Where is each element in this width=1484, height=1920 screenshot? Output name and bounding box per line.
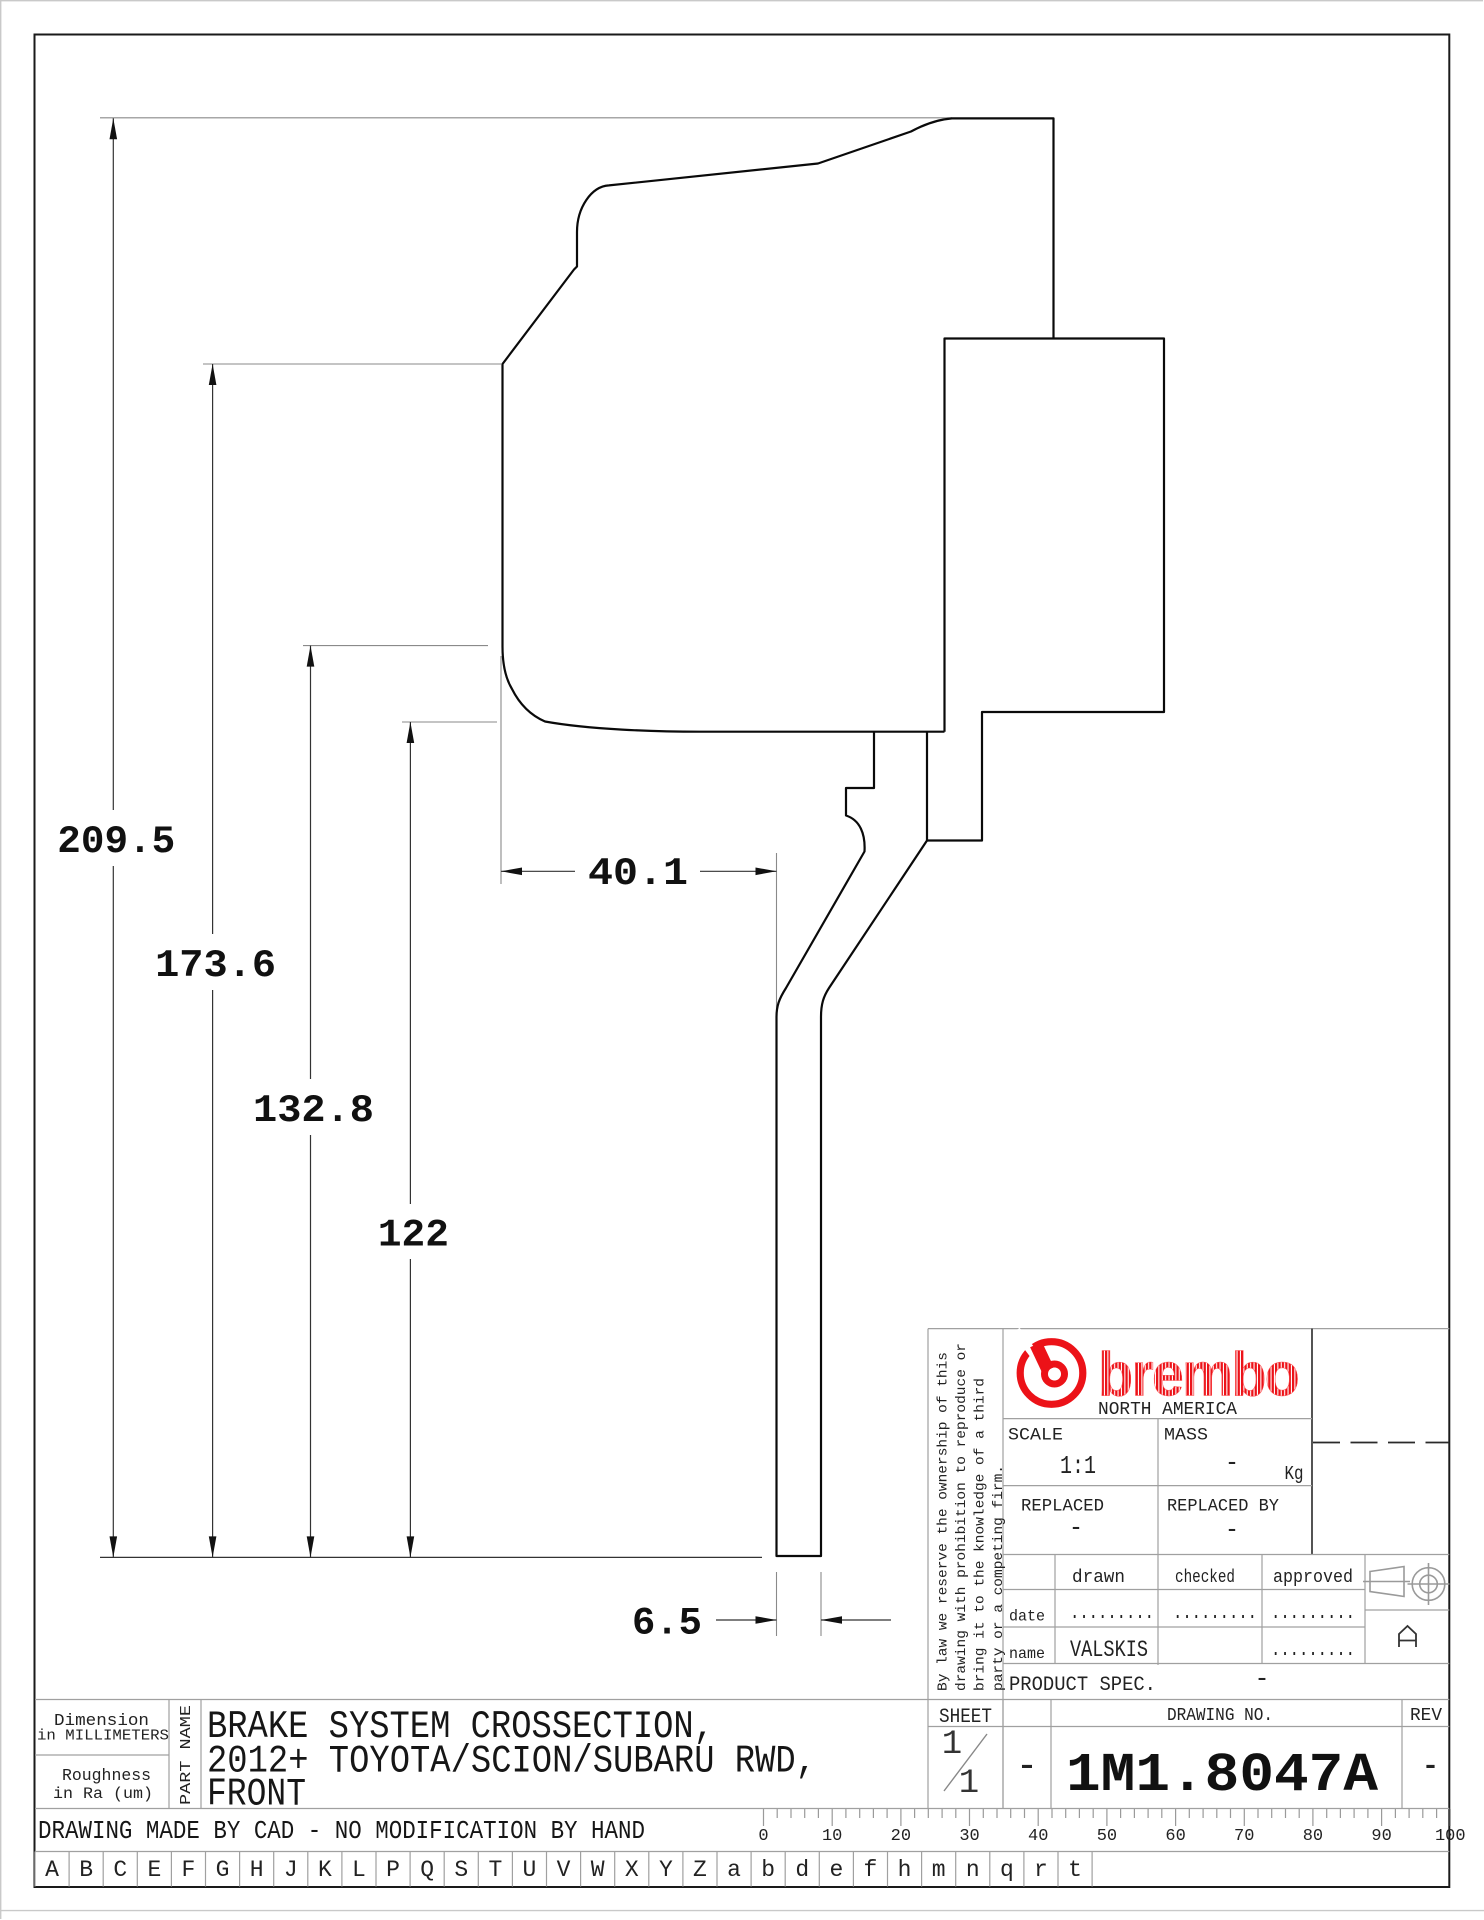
svg-text:-: -	[1016, 1745, 1038, 1790]
svg-text:Kg: Kg	[1285, 1463, 1304, 1485]
svg-text:40: 40	[1028, 1827, 1048, 1846]
svg-text:t: t	[1068, 1857, 1082, 1883]
svg-text:0: 0	[758, 1827, 768, 1846]
svg-text:bring it to the knowledge of a: bring it to the knowledge of a third	[974, 1378, 989, 1691]
svg-text:U: U	[523, 1857, 537, 1883]
svg-text:C: C	[113, 1857, 127, 1883]
svg-text:122: 122	[378, 1214, 449, 1258]
svg-text:10: 10	[822, 1827, 842, 1846]
svg-text:Y: Y	[659, 1857, 673, 1883]
svg-text:DRAWING MADE BY CAD - NO MODIF: DRAWING MADE BY CAD - NO MODIFICATION BY…	[38, 1816, 645, 1846]
svg-text:approved: approved	[1273, 1568, 1353, 1588]
svg-text:NORTH AMERICA: NORTH AMERICA	[1098, 1400, 1237, 1420]
svg-text:PRODUCT SPEC.: PRODUCT SPEC.	[1009, 1674, 1156, 1697]
svg-text:in Ra (um): in Ra (um)	[53, 1785, 153, 1803]
svg-text:L: L	[352, 1857, 366, 1883]
svg-text:173.6: 173.6	[155, 944, 276, 988]
svg-text:FRONT: FRONT	[207, 1773, 306, 1817]
svg-text:REV: REV	[1410, 1706, 1442, 1726]
svg-text:VALSKIS: VALSKIS	[1070, 1637, 1148, 1664]
svg-text:m: m	[932, 1857, 946, 1883]
svg-text:f: f	[864, 1857, 878, 1883]
svg-text:132.8: 132.8	[253, 1089, 374, 1133]
svg-text:-: -	[1255, 1664, 1270, 1694]
svg-text:e: e	[829, 1857, 843, 1883]
svg-text:W: W	[591, 1857, 605, 1883]
svg-text:1:1: 1:1	[1060, 1451, 1096, 1481]
svg-text:PART NAME: PART NAME	[178, 1705, 195, 1805]
svg-text:checked: checked	[1175, 1568, 1235, 1588]
svg-text:209.5: 209.5	[57, 820, 175, 864]
svg-text:F: F	[182, 1857, 196, 1883]
svg-text:Roughness: Roughness	[62, 1766, 151, 1785]
svg-text:SCALE: SCALE	[1008, 1426, 1063, 1446]
svg-text:Q: Q	[420, 1857, 434, 1883]
svg-text:DRAWING NO.: DRAWING NO.	[1167, 1706, 1273, 1726]
svg-text:G: G	[216, 1857, 230, 1883]
svg-text:drawing with prohibition to re: drawing with prohibition to reproduce or	[955, 1343, 970, 1691]
svg-text:40.1: 40.1	[588, 852, 688, 896]
svg-text:.........: .........	[1271, 1639, 1355, 1662]
svg-text:V: V	[557, 1857, 571, 1883]
svg-text:50: 50	[1097, 1827, 1117, 1846]
svg-text:20: 20	[891, 1827, 911, 1846]
svg-text:80: 80	[1303, 1827, 1323, 1846]
svg-text:drawn: drawn	[1072, 1568, 1125, 1588]
svg-text:30: 30	[959, 1827, 979, 1846]
svg-text:party or a competing firm.: party or a competing firm.	[992, 1465, 1007, 1691]
svg-text:-: -	[1225, 1515, 1239, 1545]
svg-text:K: K	[318, 1857, 332, 1883]
svg-text:J: J	[284, 1857, 298, 1883]
svg-text:E: E	[147, 1857, 161, 1883]
svg-text:X: X	[625, 1857, 639, 1883]
svg-text:H: H	[250, 1857, 264, 1883]
svg-text:REPLACED: REPLACED	[1021, 1497, 1104, 1517]
svg-text:REPLACED BY: REPLACED BY	[1167, 1497, 1279, 1517]
svg-text:1: 1	[959, 1765, 979, 1803]
svg-text:h: h	[898, 1857, 912, 1883]
svg-text:in MILLIMETERS: in MILLIMETERS	[37, 1728, 169, 1745]
svg-text:B: B	[79, 1857, 93, 1883]
svg-text:-: -	[1069, 1513, 1083, 1543]
svg-text:T: T	[488, 1857, 502, 1883]
svg-text:n: n	[966, 1857, 980, 1883]
svg-text:name: name	[1009, 1645, 1045, 1663]
svg-text:d: d	[795, 1857, 809, 1883]
svg-text:b: b	[761, 1857, 775, 1883]
svg-text:60: 60	[1165, 1827, 1185, 1846]
svg-text:S: S	[454, 1857, 468, 1883]
svg-text:-: -	[1422, 1745, 1440, 1790]
svg-text:date: date	[1009, 1608, 1045, 1626]
svg-text:MASS: MASS	[1164, 1426, 1208, 1446]
svg-text:.........: .........	[1070, 1602, 1154, 1625]
svg-text:P: P	[386, 1857, 400, 1883]
svg-text:1: 1	[942, 1726, 962, 1764]
svg-text:6.5: 6.5	[632, 1602, 702, 1646]
svg-text:r: r	[1034, 1857, 1048, 1883]
svg-text:90: 90	[1371, 1827, 1391, 1846]
svg-text:1M1.8047A: 1M1.8047A	[1066, 1744, 1378, 1807]
svg-text:A: A	[45, 1857, 59, 1883]
svg-text:Z: Z	[693, 1857, 707, 1883]
svg-text:70: 70	[1234, 1827, 1254, 1846]
svg-text:-: -	[1225, 1448, 1239, 1478]
svg-text:.........: .........	[1271, 1602, 1355, 1625]
svg-text:By law we reserve the ownershi: By law we reserve the ownership of this	[937, 1352, 952, 1691]
svg-text:100: 100	[1435, 1827, 1466, 1846]
svg-text:.........: .........	[1173, 1602, 1257, 1625]
svg-text:a: a	[727, 1857, 741, 1883]
svg-text:q: q	[1000, 1857, 1014, 1883]
